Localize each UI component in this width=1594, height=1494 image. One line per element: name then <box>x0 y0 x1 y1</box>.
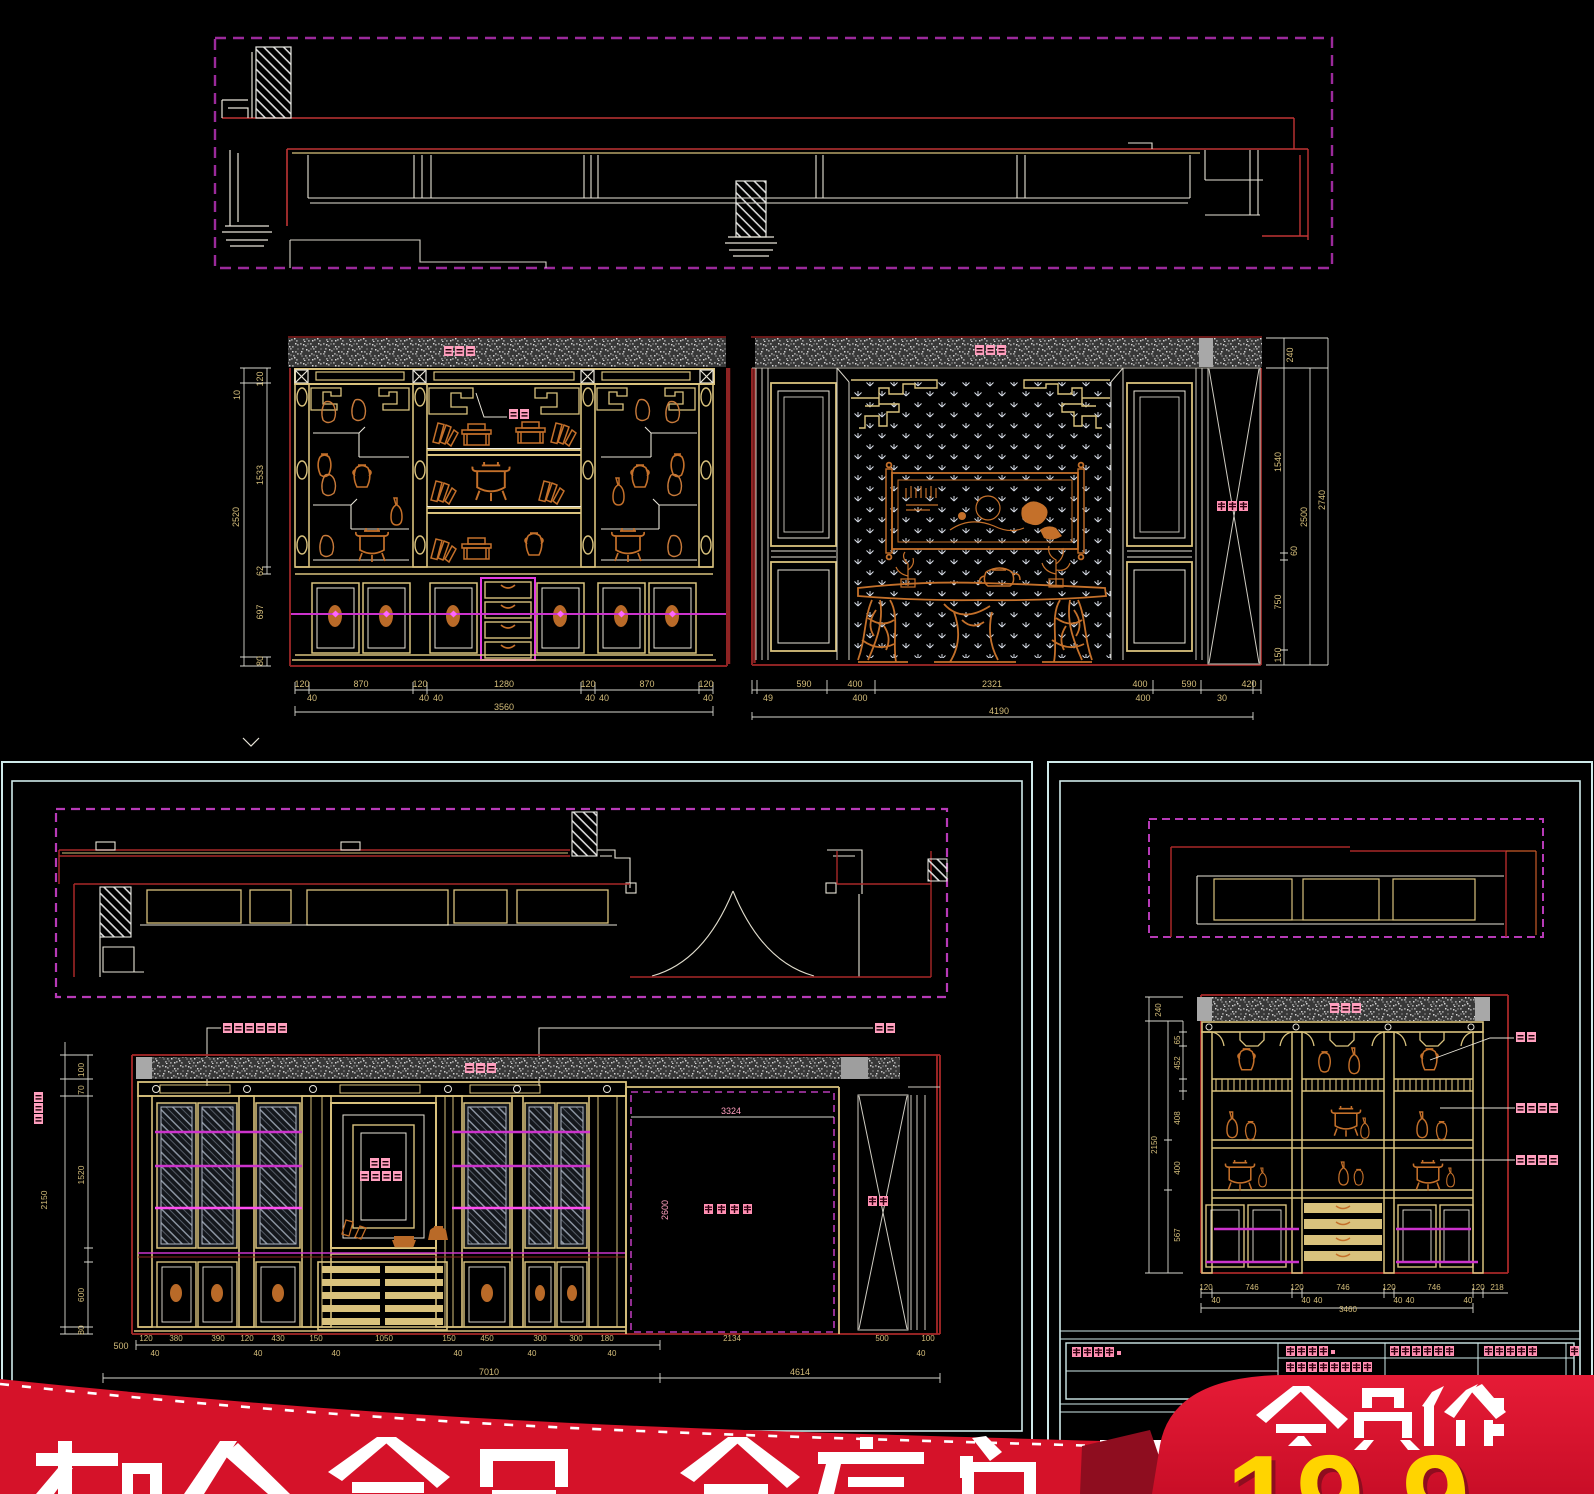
svg-text:40: 40 <box>1394 1296 1403 1305</box>
svg-text:400: 400 <box>1135 693 1150 703</box>
svg-text:120: 120 <box>1382 1283 1396 1292</box>
svg-text:1533: 1533 <box>255 465 265 485</box>
svg-text:500: 500 <box>875 1334 889 1343</box>
svg-text:40: 40 <box>528 1349 537 1358</box>
svg-text:1050: 1050 <box>375 1334 393 1343</box>
svg-text:452: 452 <box>1173 1056 1182 1070</box>
svg-text:746: 746 <box>1245 1283 1259 1292</box>
svg-text:40: 40 <box>703 693 713 703</box>
svg-text:750: 750 <box>1273 594 1283 609</box>
svg-text:7010: 7010 <box>479 1367 499 1377</box>
svg-text:40: 40 <box>1314 1296 1323 1305</box>
svg-text:40: 40 <box>433 693 443 703</box>
svg-text:30: 30 <box>1217 693 1227 703</box>
svg-text:300: 300 <box>533 1334 547 1343</box>
svg-text:120: 120 <box>412 679 427 689</box>
svg-text:10: 10 <box>232 390 242 400</box>
svg-text:120: 120 <box>1290 1283 1304 1292</box>
svg-text:1520: 1520 <box>76 1165 86 1184</box>
svg-text:408: 408 <box>1173 1111 1182 1125</box>
svg-text:2134: 2134 <box>723 1334 741 1343</box>
svg-text:150: 150 <box>442 1334 456 1343</box>
svg-text:1280: 1280 <box>494 679 514 689</box>
svg-text:2500: 2500 <box>1299 507 1309 527</box>
svg-text:40: 40 <box>254 1349 263 1358</box>
svg-text:4190: 4190 <box>989 706 1009 716</box>
svg-text:430: 430 <box>271 1334 285 1343</box>
svg-text:100: 100 <box>921 1334 935 1343</box>
svg-text:567: 567 <box>1173 1228 1182 1242</box>
svg-text:40: 40 <box>917 1349 926 1358</box>
svg-text:40: 40 <box>307 693 317 703</box>
svg-text:450: 450 <box>480 1334 494 1343</box>
svg-text:40: 40 <box>332 1349 341 1358</box>
svg-text:65: 65 <box>1173 1035 1182 1044</box>
svg-text:600: 600 <box>76 1288 86 1302</box>
svg-text:400: 400 <box>1132 679 1147 689</box>
svg-text:400: 400 <box>847 679 862 689</box>
svg-text:3324: 3324 <box>721 1106 741 1116</box>
svg-text:80: 80 <box>255 656 265 666</box>
svg-text:150: 150 <box>1273 647 1283 662</box>
svg-text:697: 697 <box>255 604 265 619</box>
svg-text:120: 120 <box>139 1334 153 1343</box>
svg-text:500: 500 <box>113 1341 128 1351</box>
svg-text:218: 218 <box>1490 1283 1504 1292</box>
svg-text:3460: 3460 <box>1339 1305 1357 1314</box>
svg-text:746: 746 <box>1427 1283 1441 1292</box>
svg-text:420: 420 <box>1241 679 1256 689</box>
svg-text:19.9: 19.9 <box>1226 1430 1471 1494</box>
svg-text:40: 40 <box>585 693 595 703</box>
svg-text:70: 70 <box>76 1085 86 1095</box>
svg-text:380: 380 <box>169 1334 183 1343</box>
svg-text:120: 120 <box>1199 1283 1213 1292</box>
svg-text:240: 240 <box>1154 1003 1163 1017</box>
svg-text:870: 870 <box>353 679 368 689</box>
svg-text:4614: 4614 <box>790 1367 810 1377</box>
svg-text:40: 40 <box>599 693 609 703</box>
svg-text:40: 40 <box>608 1349 617 1358</box>
svg-text:120: 120 <box>240 1334 254 1343</box>
svg-text:40: 40 <box>1464 1296 1473 1305</box>
svg-text:120: 120 <box>255 371 265 386</box>
svg-text:40: 40 <box>419 693 429 703</box>
svg-text:1540: 1540 <box>1273 452 1283 472</box>
svg-text:180: 180 <box>600 1334 614 1343</box>
svg-text:40: 40 <box>151 1349 160 1358</box>
svg-text:300: 300 <box>569 1334 583 1343</box>
svg-text:120: 120 <box>698 679 713 689</box>
svg-text:240: 240 <box>1285 347 1295 362</box>
svg-text:80: 80 <box>76 1325 86 1335</box>
svg-text:400: 400 <box>1173 1161 1182 1175</box>
svg-text:40: 40 <box>1406 1296 1415 1305</box>
svg-text:40: 40 <box>1212 1296 1221 1305</box>
svg-text:590: 590 <box>796 679 811 689</box>
svg-text:120: 120 <box>1471 1283 1485 1292</box>
svg-text:870: 870 <box>639 679 654 689</box>
svg-text:2150: 2150 <box>1150 1136 1159 1154</box>
svg-text:120: 120 <box>580 679 595 689</box>
svg-text:49: 49 <box>763 693 773 703</box>
svg-text:40: 40 <box>1302 1296 1311 1305</box>
svg-text:590: 590 <box>1181 679 1196 689</box>
svg-text:3560: 3560 <box>494 702 514 712</box>
svg-text:150: 150 <box>309 1334 323 1343</box>
svg-text:2321: 2321 <box>982 679 1002 689</box>
svg-text:2520: 2520 <box>231 507 241 527</box>
svg-text:100: 100 <box>76 1063 86 1077</box>
svg-text:120: 120 <box>294 679 309 689</box>
svg-text:400: 400 <box>852 693 867 703</box>
svg-text:2150: 2150 <box>39 1190 49 1209</box>
svg-text:40: 40 <box>454 1349 463 1358</box>
svg-text:390: 390 <box>211 1334 225 1343</box>
svg-text:62: 62 <box>255 566 265 576</box>
svg-text:746: 746 <box>1336 1283 1350 1292</box>
svg-text:2600: 2600 <box>660 1200 670 1220</box>
svg-text:60: 60 <box>1289 546 1299 556</box>
svg-text:2740: 2740 <box>1317 490 1327 510</box>
